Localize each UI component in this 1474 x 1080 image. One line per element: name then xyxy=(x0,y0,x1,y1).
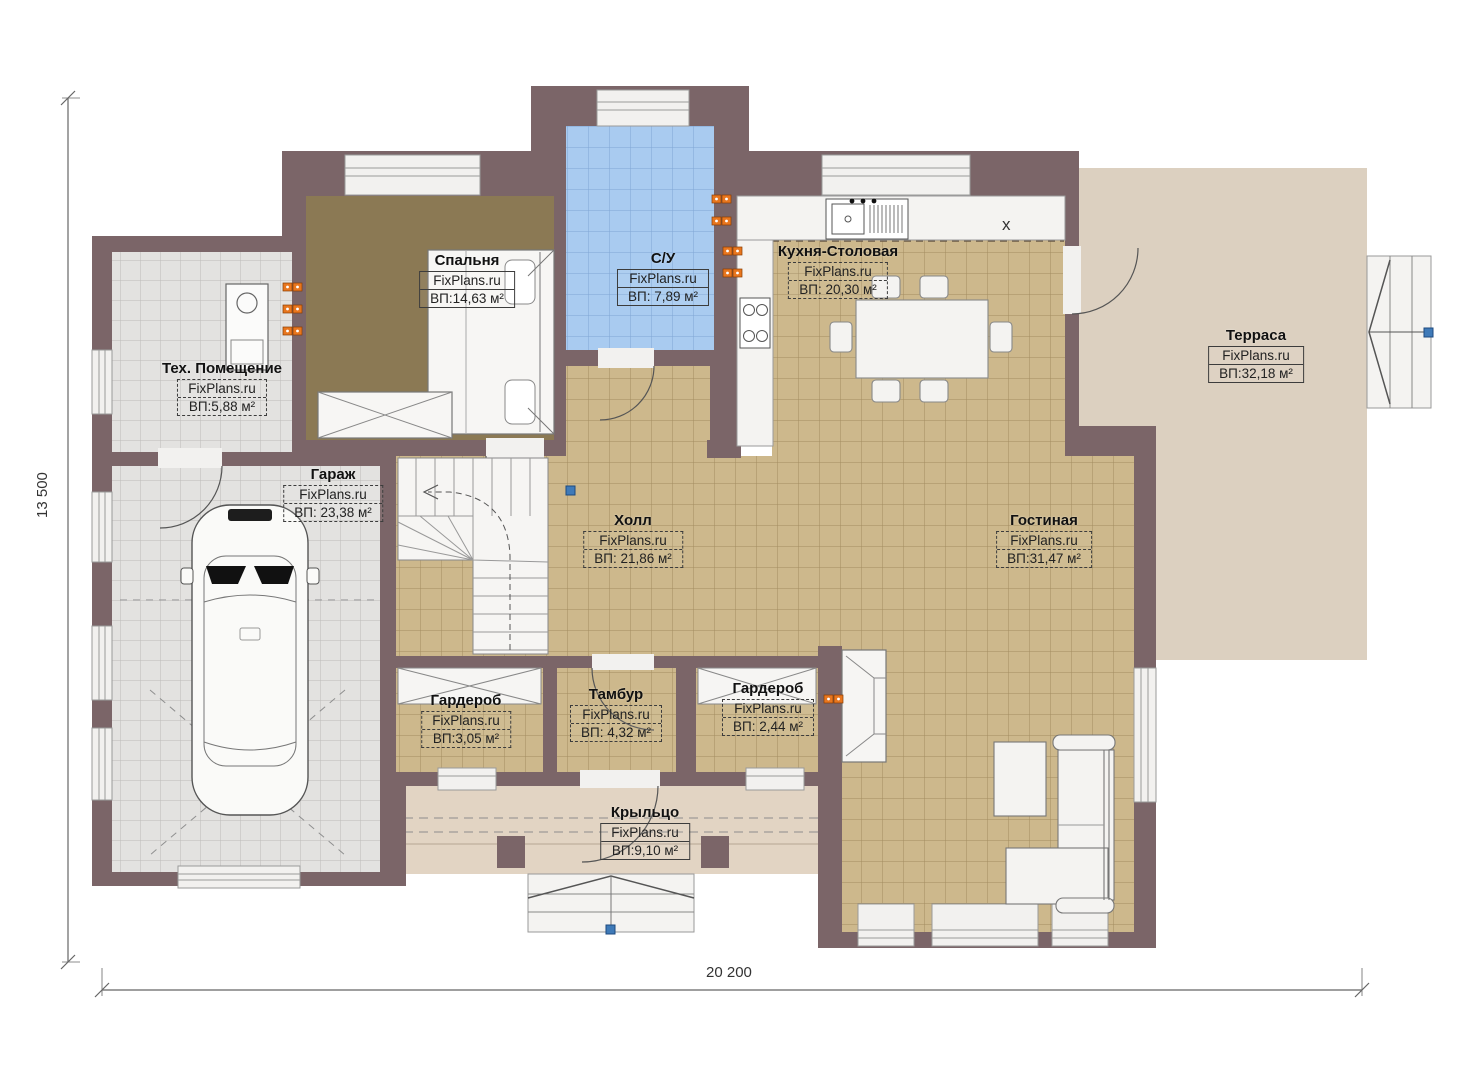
window-living-bottom-1 xyxy=(858,904,914,946)
chair xyxy=(872,380,900,402)
kitchen-sink xyxy=(826,199,908,239)
dimension-height: 13 500 xyxy=(34,472,51,518)
window-living-bottom-2 xyxy=(932,904,1038,946)
garage-gate xyxy=(178,866,300,888)
door-gap-bathroom xyxy=(598,348,654,368)
room-brand: FixPlans.ru xyxy=(723,700,813,717)
room-brand: FixPlans.ru xyxy=(618,270,708,287)
sofa-armrest xyxy=(1056,898,1114,913)
door-gap-tech-garage xyxy=(158,448,222,468)
door-gap-entrance xyxy=(580,770,660,788)
hob-x-mark: x xyxy=(1002,215,1011,234)
room-brand: FixPlans.ru xyxy=(422,712,510,729)
room-area: ВП:5,88 м² xyxy=(178,397,266,415)
window-kitchen-top xyxy=(822,155,970,195)
room-label-living-room: Гостиная FixPlans.ruВП:31,47 м² xyxy=(996,512,1092,568)
room-label-vestibule: Тамбур FixPlans.ruВП: 4,32 м² xyxy=(570,686,662,742)
room-name: Холл xyxy=(583,512,683,529)
chair xyxy=(920,276,948,298)
room-brand: FixPlans.ru xyxy=(584,532,682,549)
room-label-bathroom: С/У FixPlans.ruВП: 7,89 м² xyxy=(617,250,709,306)
room-brand: FixPlans.ru xyxy=(601,824,689,841)
door-living-terrace xyxy=(1134,668,1156,802)
room-name: Тех. Помещение xyxy=(162,360,282,377)
floor-bathroom xyxy=(566,126,714,350)
room-label-hall: Холл FixPlans.ruВП: 21,86 м² xyxy=(583,512,683,568)
room-area: ВП: 23,38 м² xyxy=(284,503,382,521)
room-label-porch: Крыльцо FixPlans.ruВП:9,10 м² xyxy=(600,804,690,860)
room-area: ВП: 20,30 м² xyxy=(789,280,887,298)
room-brand: FixPlans.ru xyxy=(284,486,382,503)
door-gap-bedroom xyxy=(486,438,544,458)
window-tech-left xyxy=(92,350,112,414)
chair xyxy=(990,322,1012,352)
window-wardrobe-1 xyxy=(438,768,496,790)
room-name: Тамбур xyxy=(570,686,662,703)
fireplace xyxy=(842,650,886,762)
room-name: С/У xyxy=(617,250,709,267)
room-label-kitchen: Кухня-Столовая FixPlans.ruВП: 20,30 м² xyxy=(778,243,898,299)
room-name: Гардероб xyxy=(722,680,814,697)
room-brand: FixPlans.ru xyxy=(997,532,1091,549)
door-gap-vestibule-hall xyxy=(592,654,654,670)
room-name: Спальня xyxy=(419,252,515,269)
room-name: Кухня-Столовая xyxy=(778,243,898,260)
room-area: ВП: 7,89 м² xyxy=(618,287,708,305)
room-label-wardrobe-2: Гардероб FixPlans.ruВП: 2,44 м² xyxy=(722,680,814,736)
room-area: ВП:3,05 м² xyxy=(422,729,510,747)
floor-plan-drawing: x xyxy=(0,0,1474,1080)
room-area: ВП:14,63 м² xyxy=(420,289,514,307)
room-brand: FixPlans.ru xyxy=(420,272,514,289)
room-area: ВП: 4,32 м² xyxy=(571,723,661,741)
room-label-terrace: Терраса FixPlans.ruВП:32,18 м² xyxy=(1208,327,1304,383)
room-area: ВП:9,10 м² xyxy=(601,841,689,859)
room-label-wardrobe-1: Гардероб FixPlans.ruВП:3,05 м² xyxy=(421,692,511,748)
sofa-armrest xyxy=(1053,735,1115,750)
door-gap-kitchen-terrace xyxy=(1063,246,1081,314)
floor-corridor xyxy=(566,366,710,458)
window-garage-left-1 xyxy=(92,492,112,562)
room-area: ВП: 2,44 м² xyxy=(723,717,813,735)
car xyxy=(181,505,319,815)
kitchen-hob xyxy=(740,298,770,348)
porch-steps xyxy=(528,874,694,932)
room-brand: FixPlans.ru xyxy=(789,263,887,280)
room-name: Гараж xyxy=(283,466,383,483)
window-bedroom-top xyxy=(345,155,480,195)
terrace-steps xyxy=(1367,256,1431,408)
window-wardrobe-2 xyxy=(746,768,804,790)
window-garage-left-2 xyxy=(92,626,112,700)
room-name: Гардероб xyxy=(421,692,511,709)
bedroom-closet xyxy=(318,392,452,438)
boiler xyxy=(226,284,268,370)
chair xyxy=(920,380,948,402)
coffee-table xyxy=(994,742,1046,816)
room-name: Крыльцо xyxy=(600,804,690,821)
window-garage-left-3 xyxy=(92,728,112,800)
dining-table xyxy=(856,300,988,378)
sofa-seat-corner xyxy=(1006,848,1108,904)
floor-plan-canvas: x xyxy=(0,0,1474,1080)
room-label-garage: Гараж FixPlans.ruВП: 23,38 м² xyxy=(283,466,383,522)
room-name: Гостиная xyxy=(996,512,1092,529)
room-label-tech-room: Тех. Помещение FixPlans.ruВП:5,88 м² xyxy=(162,360,282,416)
room-brand: FixPlans.ru xyxy=(571,706,661,723)
room-name: Терраса xyxy=(1208,327,1304,344)
room-area: ВП:32,18 м² xyxy=(1209,364,1303,382)
room-area: ВП: 21,86 м² xyxy=(584,549,682,567)
room-brand: FixPlans.ru xyxy=(178,380,266,397)
chair xyxy=(830,322,852,352)
window-bathroom-top xyxy=(597,90,689,126)
room-label-bedroom: Спальня FixPlans.ruВП:14,63 м² xyxy=(419,252,515,308)
room-brand: FixPlans.ru xyxy=(1209,347,1303,364)
room-area: ВП:31,47 м² xyxy=(997,549,1091,567)
dimension-width: 20 200 xyxy=(706,964,752,981)
